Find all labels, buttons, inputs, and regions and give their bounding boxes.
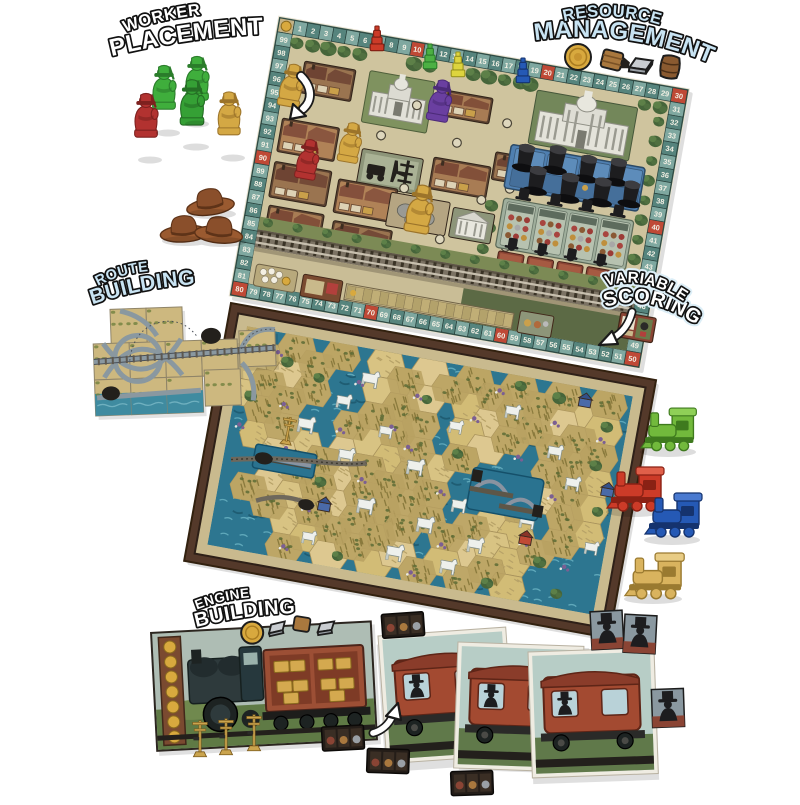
svg-text:71: 71 <box>353 305 363 315</box>
svg-text:40: 40 <box>651 222 661 232</box>
svg-text:39: 39 <box>653 209 663 219</box>
svg-text:56: 56 <box>549 340 559 350</box>
svg-text:57: 57 <box>535 337 545 347</box>
svg-text:63: 63 <box>457 324 467 334</box>
svg-text:17: 17 <box>504 61 514 71</box>
svg-text:35: 35 <box>662 157 672 167</box>
svg-text:69: 69 <box>379 310 389 320</box>
svg-text:86: 86 <box>249 205 259 215</box>
svg-text:93: 93 <box>265 113 275 123</box>
svg-text:87: 87 <box>251 192 261 202</box>
svg-text:68: 68 <box>392 312 402 322</box>
svg-text:32: 32 <box>669 117 679 127</box>
svg-text:88: 88 <box>253 179 263 189</box>
svg-text:95: 95 <box>270 87 280 97</box>
svg-text:58: 58 <box>522 335 532 345</box>
svg-text:72: 72 <box>340 303 350 313</box>
svg-text:19: 19 <box>530 65 540 75</box>
svg-text:28: 28 <box>647 86 657 96</box>
svg-text:98: 98 <box>277 48 287 58</box>
svg-text:83: 83 <box>242 244 252 254</box>
svg-text:16: 16 <box>491 58 501 68</box>
svg-text:62: 62 <box>470 326 480 336</box>
svg-text:70: 70 <box>366 307 376 317</box>
svg-text:60: 60 <box>496 331 506 341</box>
svg-text:50: 50 <box>628 354 638 364</box>
svg-text:43: 43 <box>644 262 654 272</box>
svg-text:15: 15 <box>478 56 488 66</box>
svg-text:21: 21 <box>556 70 566 80</box>
svg-text:78: 78 <box>262 289 272 299</box>
svg-text:66: 66 <box>418 317 428 327</box>
svg-text:41: 41 <box>649 235 659 245</box>
svg-text:10: 10 <box>413 45 423 55</box>
svg-text:23: 23 <box>582 75 592 85</box>
svg-text:99: 99 <box>279 35 289 45</box>
svg-text:12: 12 <box>439 49 449 59</box>
svg-text:55: 55 <box>562 342 572 352</box>
svg-text:53: 53 <box>588 347 598 357</box>
svg-text:42: 42 <box>646 249 656 259</box>
svg-text:26: 26 <box>621 81 631 91</box>
svg-text:80: 80 <box>235 284 245 294</box>
svg-text:51: 51 <box>614 351 624 361</box>
svg-text:59: 59 <box>509 333 519 343</box>
svg-text:89: 89 <box>256 166 266 176</box>
svg-text:37: 37 <box>658 183 668 193</box>
svg-text:31: 31 <box>672 104 682 114</box>
svg-text:82: 82 <box>239 258 249 268</box>
svg-text:92: 92 <box>263 127 273 137</box>
svg-text:91: 91 <box>260 140 270 150</box>
svg-text:90: 90 <box>258 153 268 163</box>
svg-text:49: 49 <box>630 340 640 350</box>
svg-text:77: 77 <box>275 291 285 301</box>
svg-text:67: 67 <box>405 314 415 324</box>
svg-text:25: 25 <box>608 79 618 89</box>
svg-text:61: 61 <box>483 328 493 338</box>
svg-text:97: 97 <box>274 61 284 71</box>
svg-text:20: 20 <box>543 68 553 78</box>
svg-text:36: 36 <box>660 170 670 180</box>
svg-text:38: 38 <box>656 196 666 206</box>
svg-text:85: 85 <box>246 218 256 228</box>
svg-text:81: 81 <box>237 271 247 281</box>
svg-text:27: 27 <box>634 84 644 94</box>
svg-text:65: 65 <box>431 319 441 329</box>
svg-text:52: 52 <box>601 349 611 359</box>
svg-text:76: 76 <box>288 294 298 304</box>
svg-text:96: 96 <box>272 74 282 84</box>
svg-text:29: 29 <box>660 88 670 98</box>
svg-text:79: 79 <box>249 287 259 297</box>
svg-text:33: 33 <box>667 131 677 141</box>
svg-text:22: 22 <box>569 72 579 82</box>
svg-text:30: 30 <box>674 91 684 101</box>
